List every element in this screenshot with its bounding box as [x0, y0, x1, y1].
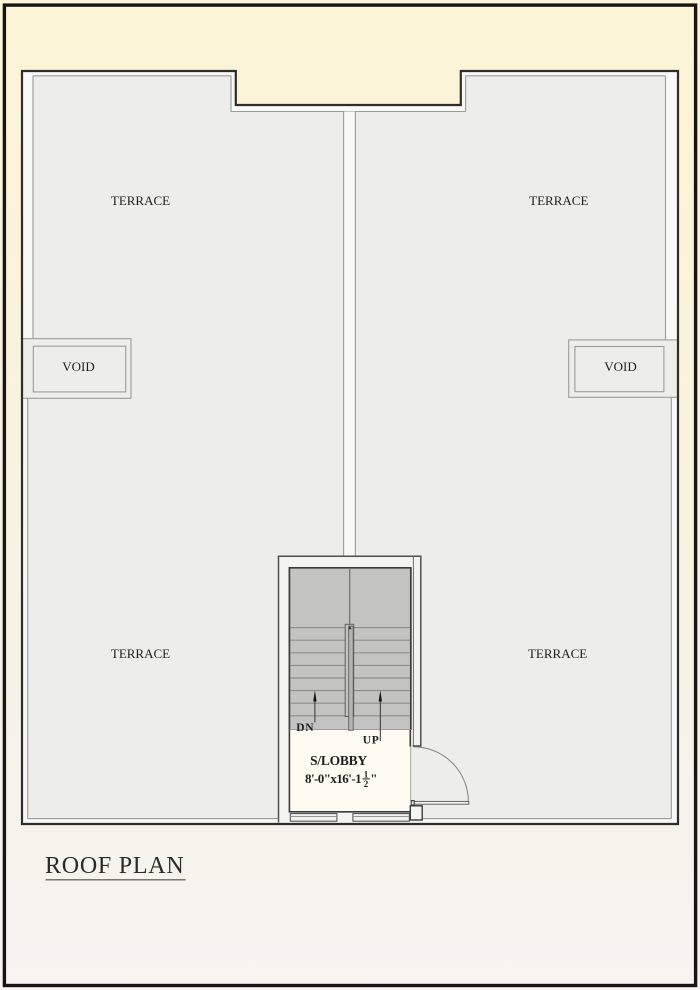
- svg-text:DN: DN: [296, 722, 314, 734]
- svg-text:TERRACE: TERRACE: [529, 193, 588, 208]
- svg-text:ROOF PLAN: ROOF PLAN: [45, 853, 184, 879]
- svg-text:TERRACE: TERRACE: [528, 646, 587, 661]
- svg-text:1: 1: [364, 770, 369, 780]
- svg-text:UP: UP: [363, 735, 380, 747]
- svg-text:S/LOBBY: S/LOBBY: [310, 753, 367, 768]
- svg-text:2: 2: [364, 779, 369, 789]
- svg-text:": ": [370, 771, 377, 786]
- svg-text:TERRACE: TERRACE: [111, 646, 170, 661]
- svg-text:VOID: VOID: [62, 359, 95, 374]
- svg-text:8'-0"x16'-1: 8'-0"x16'-1: [305, 771, 361, 786]
- svg-text:VOID: VOID: [604, 359, 637, 374]
- svg-text:TERRACE: TERRACE: [111, 193, 170, 208]
